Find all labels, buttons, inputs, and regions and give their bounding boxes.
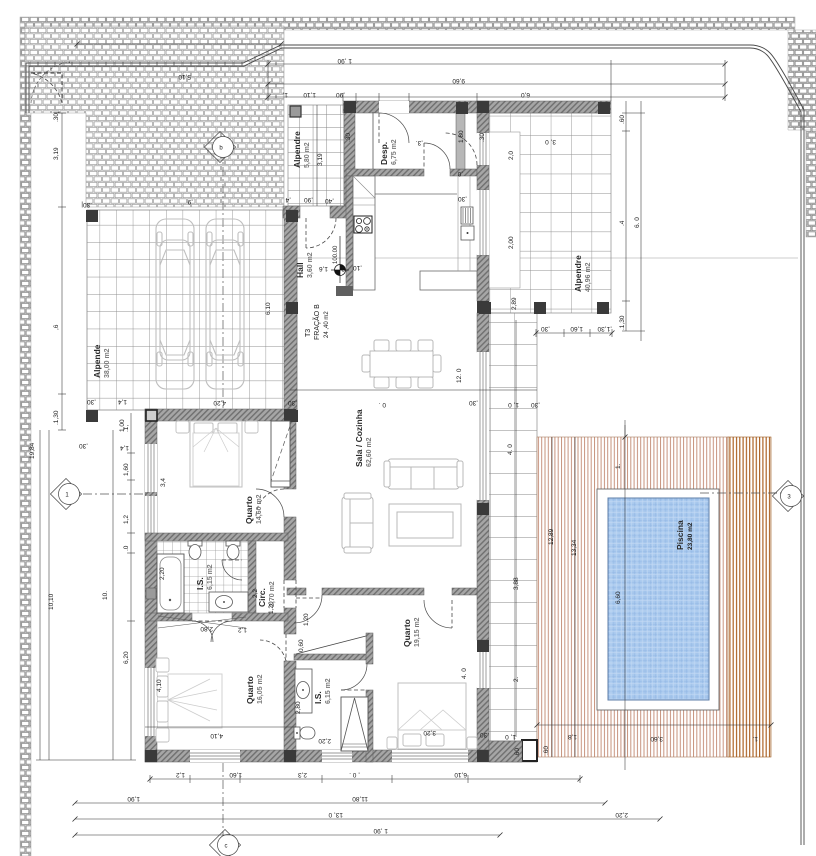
svg-text:10.: 10.: [102, 591, 109, 600]
svg-text:.60: .60: [543, 746, 550, 755]
svg-text:,90: ,90: [304, 196, 313, 203]
svg-text:Desp.: Desp.: [379, 142, 389, 165]
svg-text:,4: ,4: [285, 196, 291, 203]
svg-text:1,10: 1,10: [303, 91, 316, 98]
svg-text:3, 0: 3, 0: [545, 138, 556, 145]
svg-text:1,8: 1,8: [568, 733, 577, 740]
svg-text:2,80: 2,80: [295, 701, 302, 714]
svg-text:6,20: 6,20: [123, 651, 130, 664]
svg-text:4,20: 4,20: [213, 399, 226, 406]
svg-text:.30|: .30|: [53, 111, 60, 122]
svg-text:1,4: 1,4: [118, 398, 127, 405]
svg-text:2,20: 2,20: [159, 567, 166, 580]
svg-text:3,60: 3,60: [650, 735, 663, 742]
svg-text:,30: ,30: [531, 401, 540, 408]
svg-text:1 ,90: 1 ,90: [337, 57, 352, 64]
svg-text:.4: .4: [619, 220, 626, 226]
svg-text:Alpende: Alpende: [92, 344, 102, 378]
svg-text:1 ,90: 1 ,90: [373, 827, 388, 834]
svg-text:0,60: 0,60: [298, 639, 305, 652]
svg-text:62,60 m2: 62,60 m2: [366, 437, 373, 467]
svg-text:4,10: 4,10: [156, 679, 163, 692]
svg-text:,30: ,30: [469, 399, 478, 406]
svg-text:, 0 .: , 0 .: [349, 771, 360, 778]
svg-text:,90: ,90: [336, 91, 345, 98]
svg-text:,30: ,30: [79, 442, 88, 449]
svg-text:38,00 m2: 38,00 m2: [104, 348, 111, 378]
svg-text:.30|: .30|: [81, 201, 92, 208]
svg-text:13, 0: 13, 0: [328, 811, 343, 818]
svg-text:2,20: 2,20: [615, 811, 628, 818]
svg-text:1,20: 1,20: [268, 601, 275, 614]
svg-text:5,80 m2: 5,80 m2: [304, 142, 311, 168]
svg-text:,1,30: ,1,30: [597, 325, 612, 332]
svg-text:,6: ,6: [53, 324, 60, 330]
svg-text:40,96 m2: 40,96 m2: [585, 262, 592, 292]
svg-text:.30: .30: [480, 731, 489, 738]
svg-text:Quarto: Quarto: [244, 496, 254, 524]
svg-text:2,0: 2,0: [508, 151, 515, 160]
svg-text:0 .: 0 .: [379, 401, 386, 408]
svg-text:19,15 m2: 19,15 m2: [414, 617, 421, 647]
svg-text:.0: .0: [123, 545, 130, 551]
svg-text:I.S.: I.S.: [195, 577, 205, 590]
svg-text:6,15 m2: 6,15 m2: [207, 564, 214, 590]
svg-text:6,0: 6,0: [521, 91, 530, 98]
svg-text:.1,30: .1,30: [53, 410, 60, 425]
svg-text:1,60: 1,60: [123, 463, 130, 476]
svg-text:1.: 1.: [752, 735, 758, 742]
svg-text:.60: .60: [514, 748, 521, 757]
svg-text:12,89: 12,89: [548, 528, 555, 545]
svg-text:14,60 m2: 14,60 m2: [256, 494, 263, 524]
svg-text:3,60 m2: 3,60 m2: [307, 252, 314, 278]
svg-text:11,80: 11,80: [352, 795, 368, 802]
svg-text:,10: ,10: [353, 264, 362, 271]
svg-text:23,80 m2: 23,80 m2: [687, 522, 694, 550]
svg-text:Quarto: Quarto: [402, 619, 412, 647]
svg-text:1,: 1,: [282, 91, 288, 98]
svg-text:2,89: 2,89: [511, 297, 518, 310]
svg-text:3,20: 3,20: [423, 729, 436, 736]
svg-text:2,00: 2,00: [508, 236, 515, 249]
svg-text:3,19: 3,19: [317, 153, 324, 166]
svg-text:19,84: 19,84: [29, 442, 36, 459]
svg-text:,30: ,30: [458, 195, 467, 202]
svg-text:1,60: 1,60: [229, 771, 242, 778]
svg-text:6,75 m2: 6,75 m2: [391, 139, 398, 165]
svg-text:,30: ,30: [87, 398, 96, 405]
svg-text:100.00: 100.00: [333, 245, 339, 264]
svg-text:5,10: 5,10: [178, 73, 191, 80]
svg-text:T3: T3: [305, 329, 312, 337]
svg-text:1,80: 1,80: [458, 130, 465, 143]
svg-text:.1,30: .1,30: [619, 315, 626, 330]
svg-text:12. 0: 12. 0: [456, 368, 463, 383]
svg-text:.60: .60: [619, 115, 626, 124]
svg-text:.30: .30: [479, 133, 486, 142]
svg-text:13,34: 13,34: [571, 539, 578, 556]
svg-text:,9: ,9: [187, 198, 193, 205]
svg-text:2,80: 2,80: [200, 625, 213, 632]
svg-text:3,88: 3,88: [513, 577, 520, 590]
svg-text:4. 0: 4. 0: [461, 668, 468, 679]
svg-text:2,3: 2,3: [298, 771, 307, 778]
svg-text:2,2: 2,2: [252, 589, 259, 598]
svg-text:1,00: 1,00: [119, 419, 126, 432]
svg-text:1,6: 1,6: [319, 265, 328, 272]
svg-text:6. 0: 6. 0: [634, 217, 641, 228]
svg-text:6,15 m2: 6,15 m2: [325, 678, 332, 704]
svg-text:6.10: 6.10: [265, 302, 272, 315]
svg-text:1.: 1.: [615, 463, 622, 469]
svg-text:10,10: 10,10: [48, 593, 55, 610]
svg-text:16,05 m2: 16,05 m2: [257, 674, 264, 704]
svg-text:1, 0: 1, 0: [505, 733, 516, 740]
svg-text:c: c: [225, 844, 228, 850]
svg-text:6,10: 6,10: [454, 771, 467, 778]
svg-text:Hall: Hall: [295, 262, 305, 278]
svg-text:24 ,40 m2: 24 ,40 m2: [324, 311, 330, 338]
svg-text:I.S.: I.S.: [313, 691, 323, 704]
svg-text:Alpendre: Alpendre: [573, 255, 583, 292]
svg-text:,30: ,30: [288, 399, 297, 406]
svg-text:1,90: 1,90: [127, 795, 140, 802]
svg-text:Quarto: Quarto: [245, 676, 255, 704]
svg-text:3,19: 3,19: [53, 147, 60, 160]
svg-text:1, 0: 1, 0: [508, 401, 519, 408]
svg-text:Alpendre: Alpendre: [292, 131, 302, 168]
svg-text:.30: .30: [345, 133, 352, 142]
svg-text:Sala / Cozinha: Sala / Cozinha: [354, 409, 364, 467]
svg-text:2.: 2.: [513, 676, 520, 682]
svg-text:9,60: 9,60: [452, 77, 465, 84]
svg-text:1,4: 1,4: [120, 444, 129, 451]
svg-text:4,10: 4,10: [210, 732, 223, 739]
svg-text:2,20: 2,20: [318, 737, 331, 744]
svg-text:Piscina: Piscina: [675, 520, 685, 550]
svg-text:6,60: 6,60: [615, 591, 622, 604]
svg-text:1,2: 1,2: [176, 771, 185, 778]
svg-text:,0: ,0: [457, 170, 463, 177]
svg-text:3,4: 3,4: [160, 478, 167, 487]
svg-text:FRAÇÃO B: FRAÇÃO B: [312, 304, 321, 340]
svg-text:3,: 3,: [339, 265, 345, 272]
svg-text:1,20: 1,20: [303, 613, 310, 626]
svg-text:,3.: ,3.: [416, 139, 423, 146]
svg-text:,40: ,40: [325, 197, 334, 204]
svg-text:1,60: 1,60: [570, 325, 583, 332]
svg-text:1,2: 1,2: [123, 515, 130, 524]
svg-text:4. 0: 4. 0: [507, 444, 514, 455]
svg-text:,30: ,30: [541, 325, 550, 332]
